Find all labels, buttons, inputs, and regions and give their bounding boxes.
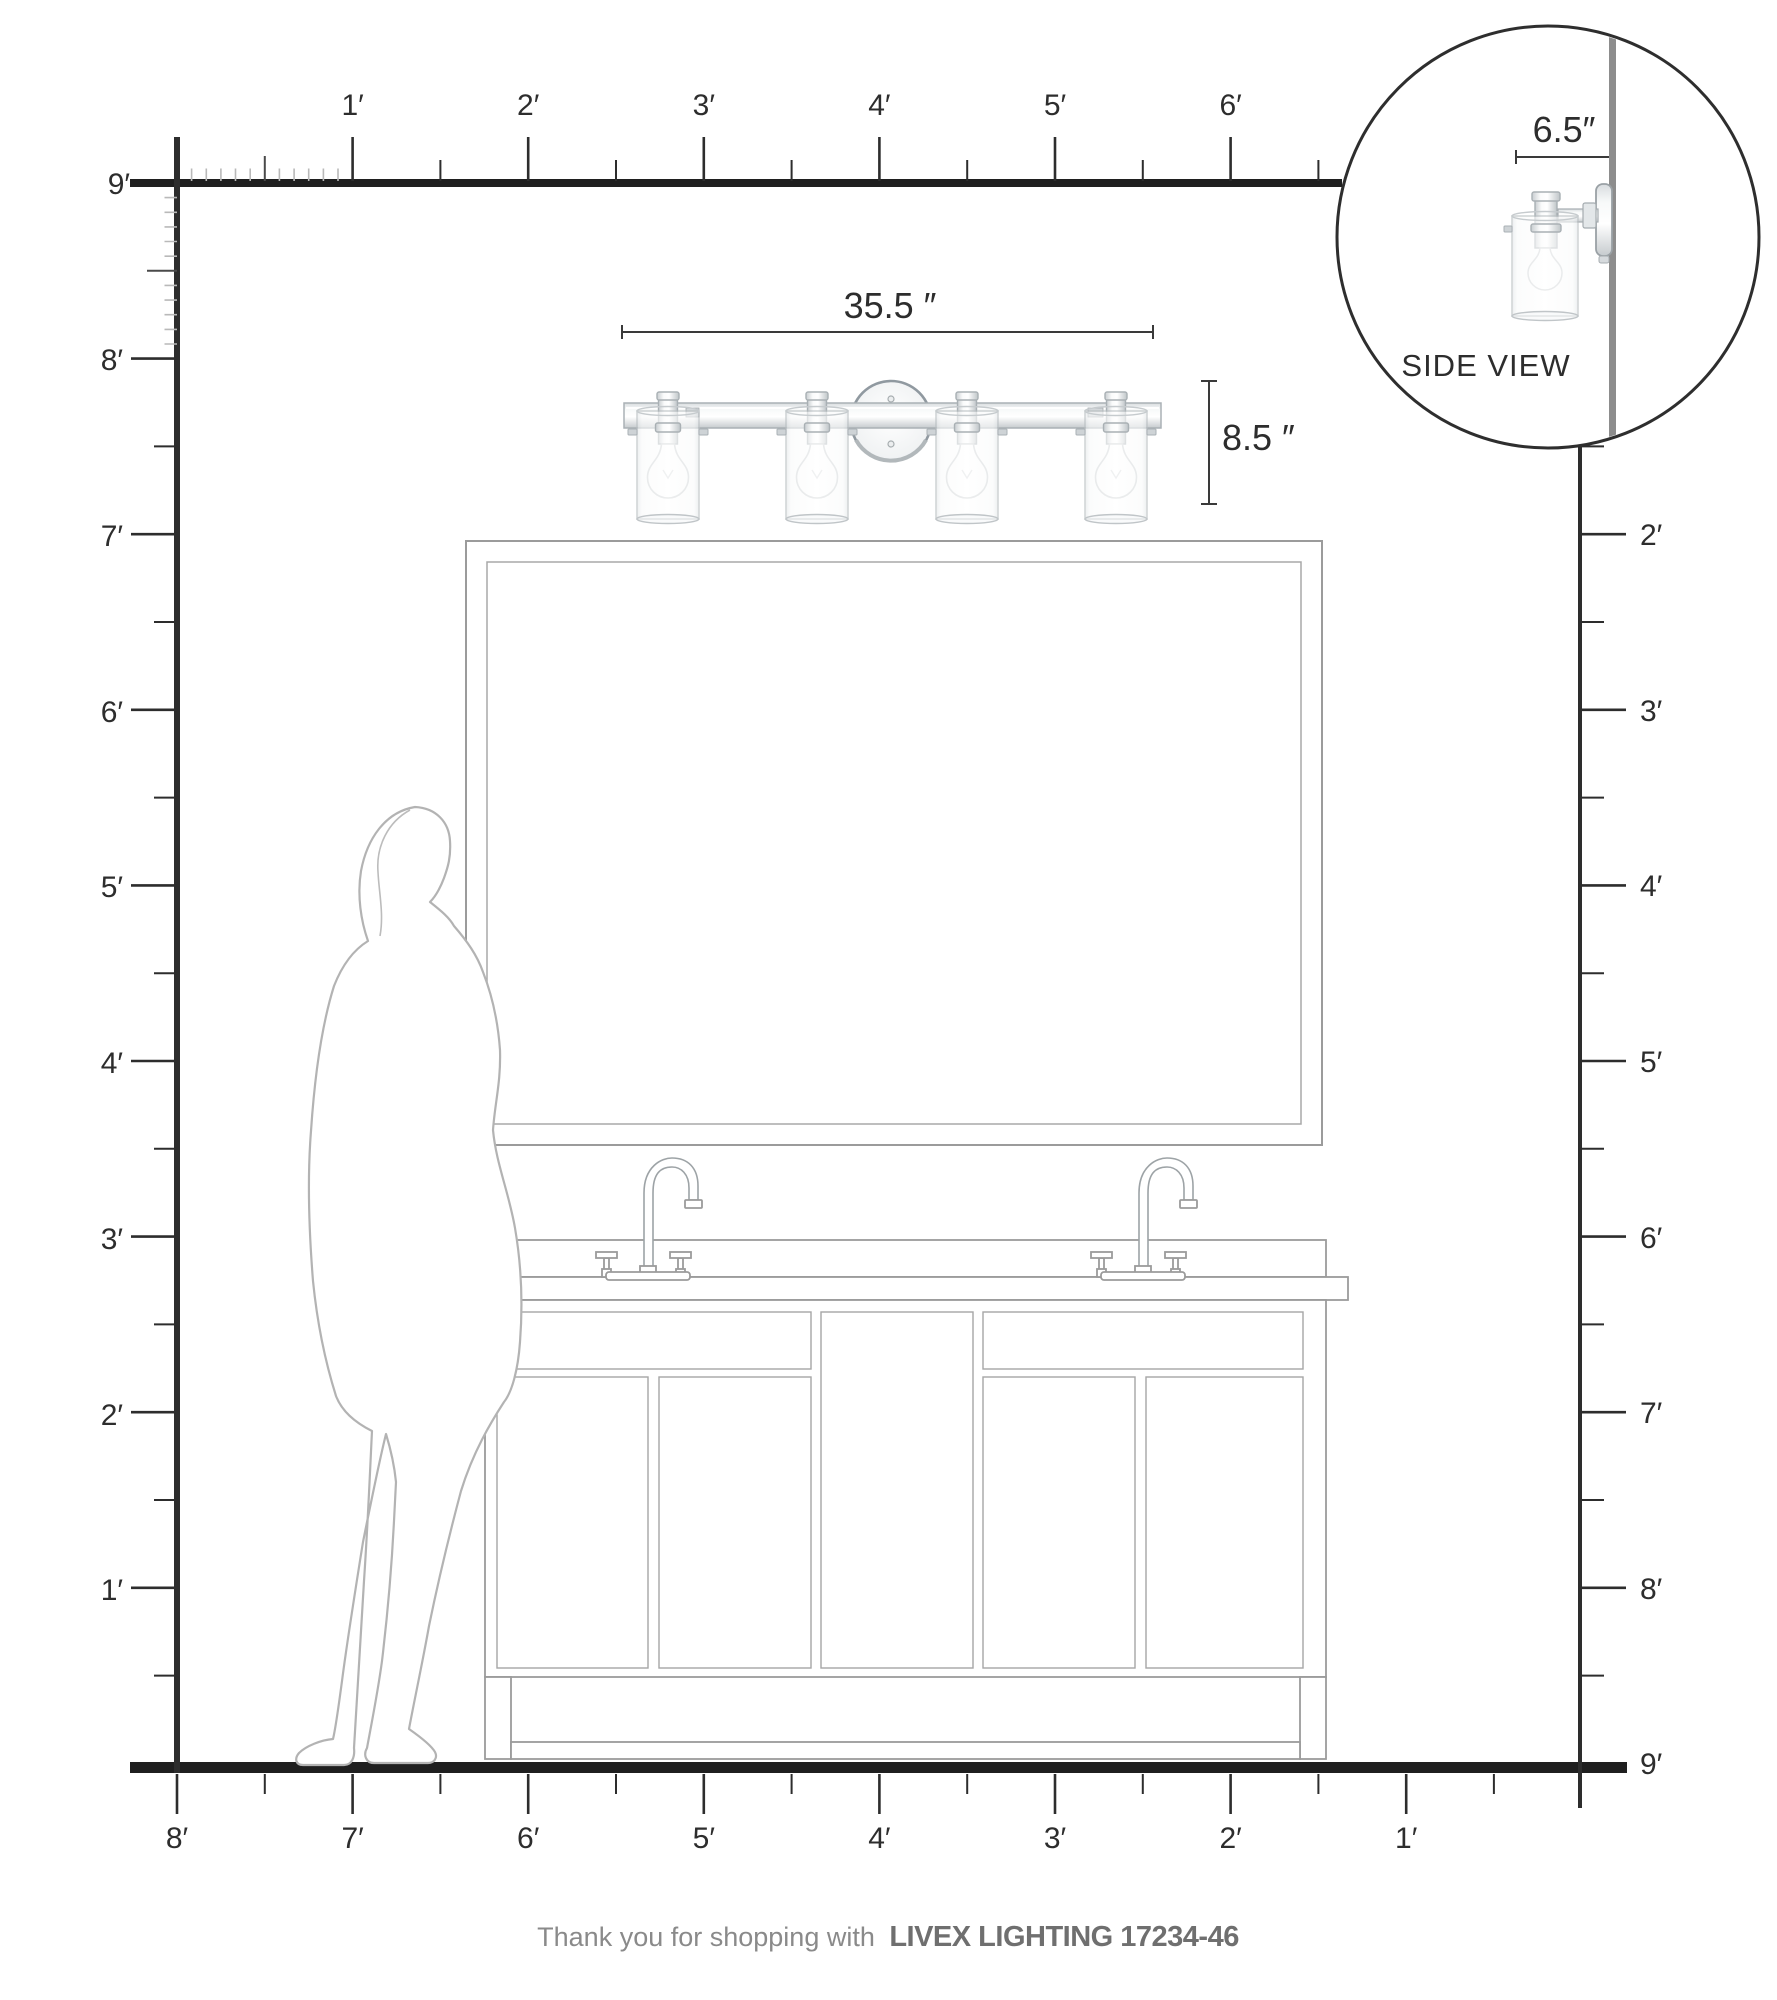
left-ruler-label: 6′ — [101, 696, 124, 729]
width-dimension-label: 35.5 ″ — [844, 285, 937, 326]
left-ruler-label: 9′ — [108, 168, 131, 201]
top-ruler-label: 4′ — [868, 89, 891, 122]
side-arm-nut — [1583, 203, 1596, 228]
right-ruler-label: 9′ — [1640, 1748, 1663, 1781]
top-ruler-label: 3′ — [693, 89, 716, 122]
footer: Thank you for shopping with LIVEX LIGHTI… — [537, 1921, 1239, 1953]
right-ruler-label: 2′ — [1640, 519, 1663, 552]
left-ruler-label: 5′ — [101, 871, 124, 904]
cabinet-stretcher — [511, 1742, 1300, 1759]
right-ruler-label: 7′ — [1640, 1397, 1663, 1430]
bottom-ruler-label: 3′ — [1044, 1822, 1067, 1855]
svg-text:Thank you for shopping with: Thank you for shopping with LIVEX LIGHTI… — [537, 1921, 1239, 1953]
lamp-4 — [1076, 392, 1156, 524]
cabinet-leg-left — [485, 1677, 511, 1759]
right-ruler-label: 8′ — [1640, 1573, 1663, 1606]
side-view-inset: 6.5″ SIDE VIEW — [1337, 26, 1759, 449]
left-wall-ruler-line — [174, 137, 180, 1773]
mirror — [466, 541, 1322, 1145]
bottom-ruler-label: 2′ — [1219, 1822, 1242, 1855]
right-ruler-label: 3′ — [1640, 695, 1663, 728]
bottom-ruler-label: 5′ — [693, 1822, 716, 1855]
right-ruler-label: 5′ — [1640, 1046, 1663, 1079]
left-ruler: 9′ 8′ 7′ 6′ 5′ 4′ 3′ 2′ 1′ — [101, 168, 177, 1676]
left-ruler-label: 8′ — [101, 344, 124, 377]
countertop — [463, 1277, 1348, 1300]
bottom-ruler-label: 4′ — [868, 1822, 891, 1855]
left-ruler-label: 7′ — [101, 520, 124, 553]
lamp-2 — [777, 392, 857, 524]
fixture-bar — [624, 403, 1161, 428]
left-ruler-label: 3′ — [101, 1223, 124, 1256]
top-ruler: 1′ 2′ 3′ 4′ 5′ 6′ — [192, 89, 1319, 181]
dimension-diagram-canvas: 1′ 2′ 3′ 4′ 5′ 6′ 9′ 8′ 7′ 6′ 5′ 4′ 3′ 2… — [0, 0, 1777, 2000]
left-ruler-label: 4′ — [101, 1047, 124, 1080]
top-ruler-label: 5′ — [1044, 89, 1067, 122]
right-ruler-label: 6′ — [1640, 1222, 1663, 1255]
bottom-ruler-label: 8′ — [166, 1822, 189, 1855]
top-ruler-label: 2′ — [517, 89, 540, 122]
vanity-light-fixture — [624, 381, 1161, 524]
top-ruler-label: 6′ — [1219, 89, 1242, 122]
right-wall-ruler-line — [1578, 445, 1582, 1808]
vanity-cabinet — [463, 1240, 1348, 1759]
footer-brand: LIVEX LIGHTING 17234-46 — [889, 1921, 1239, 1953]
right-ruler: 2′ 3′ 4′ 5′ 6′ 7′ 8′ 9′ — [1582, 446, 1663, 1781]
dimension-diagram-page: 1′ 2′ 3′ 4′ 5′ 6′ 9′ 8′ 7′ 6′ 5′ 4′ 3′ 2… — [0, 0, 1777, 2000]
left-ruler-label: 1′ — [101, 1574, 124, 1607]
side-view-caption: SIDE VIEW — [1401, 348, 1570, 383]
ceiling-line — [130, 179, 1342, 187]
cabinet-leg-right — [1300, 1677, 1326, 1759]
lamp-3 — [927, 392, 1007, 524]
bottom-ruler-label: 1′ — [1395, 1822, 1418, 1855]
floor-line — [130, 1762, 1627, 1773]
width-dimension: 35.5 ″ — [622, 285, 1153, 339]
bottom-ruler-label: 7′ — [341, 1822, 364, 1855]
depth-dimension-label: 6.5″ — [1533, 109, 1596, 150]
top-ruler-label: 1′ — [341, 89, 364, 122]
footer-message: Thank you for shopping with — [537, 1922, 875, 1952]
height-dimension: 8.5 ″ — [1201, 381, 1295, 504]
height-dimension-label: 8.5 ″ — [1222, 417, 1295, 458]
lamp-1 — [628, 392, 708, 524]
cabinet-body — [485, 1300, 1326, 1677]
right-ruler-label: 4′ — [1640, 870, 1663, 903]
left-ruler-label: 2′ — [101, 1399, 124, 1432]
bottom-ruler-label: 6′ — [517, 1822, 540, 1855]
bottom-ruler: 8′ 7′ 6′ 5′ 4′ 3′ 2′ 1′ — [166, 1774, 1494, 1855]
